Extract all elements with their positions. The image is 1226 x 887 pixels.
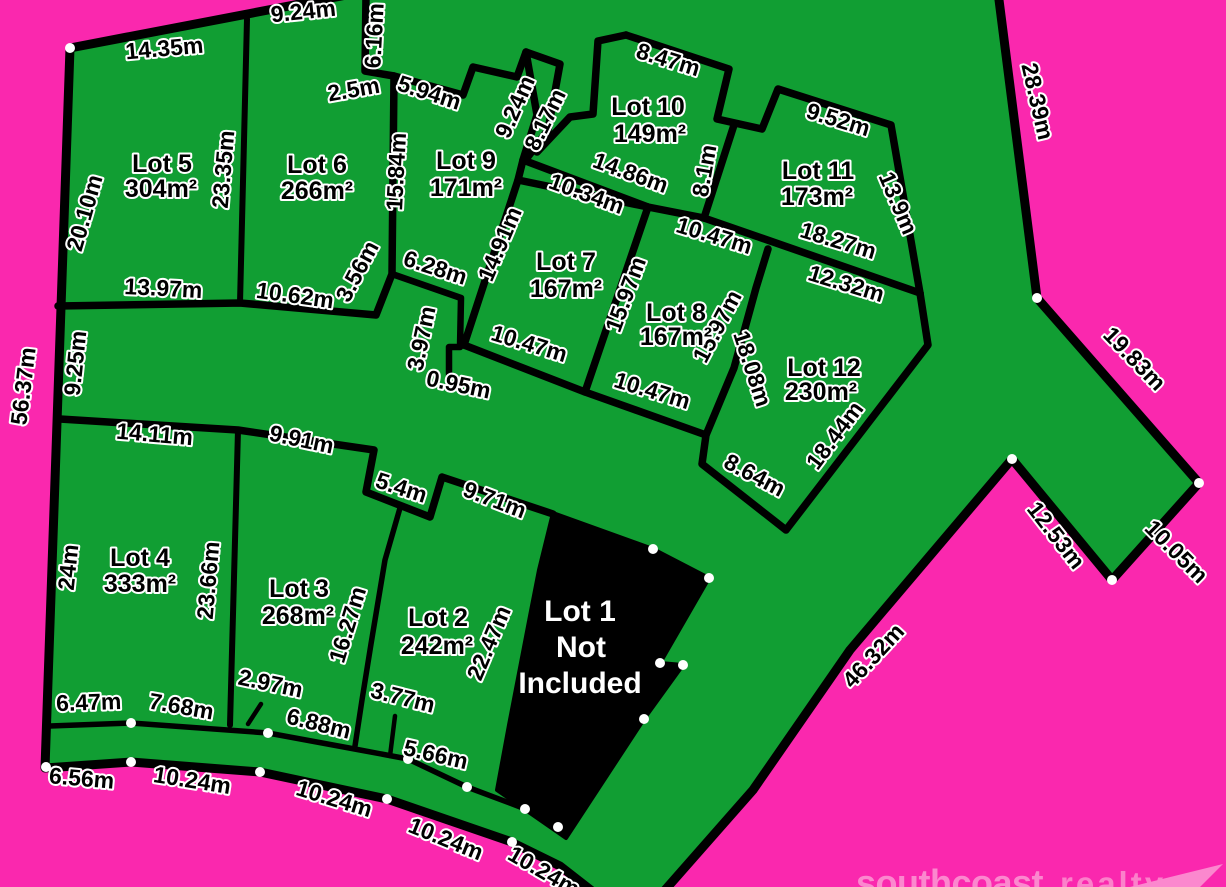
svg-text:15.84m: 15.84m xyxy=(381,132,411,211)
svg-text:167m²: 167m² xyxy=(530,275,602,303)
svg-text:southcoast: southcoast xyxy=(856,862,1044,887)
svg-text:Lot 11: Lot 11 xyxy=(782,157,854,185)
svg-text:24m: 24m xyxy=(53,543,84,592)
svg-text:304m²: 304m² xyxy=(125,175,197,203)
svg-text:Lot 6: Lot 6 xyxy=(287,151,347,179)
svg-text:Lot 9: Lot 9 xyxy=(436,147,496,175)
svg-text:Included: Included xyxy=(518,667,641,700)
svg-text:266m²: 266m² xyxy=(281,177,353,205)
svg-text:149m²: 149m² xyxy=(614,120,686,148)
svg-text:6.47m: 6.47m xyxy=(56,688,122,716)
svg-text:Lot 4: Lot 4 xyxy=(110,544,170,572)
svg-text:242m²: 242m² xyxy=(401,632,473,660)
svg-text:333m²: 333m² xyxy=(104,570,176,598)
svg-text:268m²: 268m² xyxy=(262,602,334,630)
svg-text:167m²: 167m² xyxy=(640,323,712,351)
svg-text:Lot 10: Lot 10 xyxy=(611,93,685,121)
svg-text:6.16m: 6.16m xyxy=(359,2,388,68)
svg-text:13.97m: 13.97m xyxy=(124,273,203,303)
svg-text:230m²: 230m² xyxy=(785,378,857,406)
svg-text:Lot 7: Lot 7 xyxy=(536,248,596,276)
svg-text:Not: Not xyxy=(556,631,606,664)
svg-text:Lot 1: Lot 1 xyxy=(544,595,616,628)
svg-text:Lot 2: Lot 2 xyxy=(408,604,468,632)
svg-text:Lot 5: Lot 5 xyxy=(132,150,192,178)
svg-text:171m²: 171m² xyxy=(430,174,502,202)
svg-text:Lot 3: Lot 3 xyxy=(269,575,329,603)
svg-text:173m²: 173m² xyxy=(781,183,853,211)
